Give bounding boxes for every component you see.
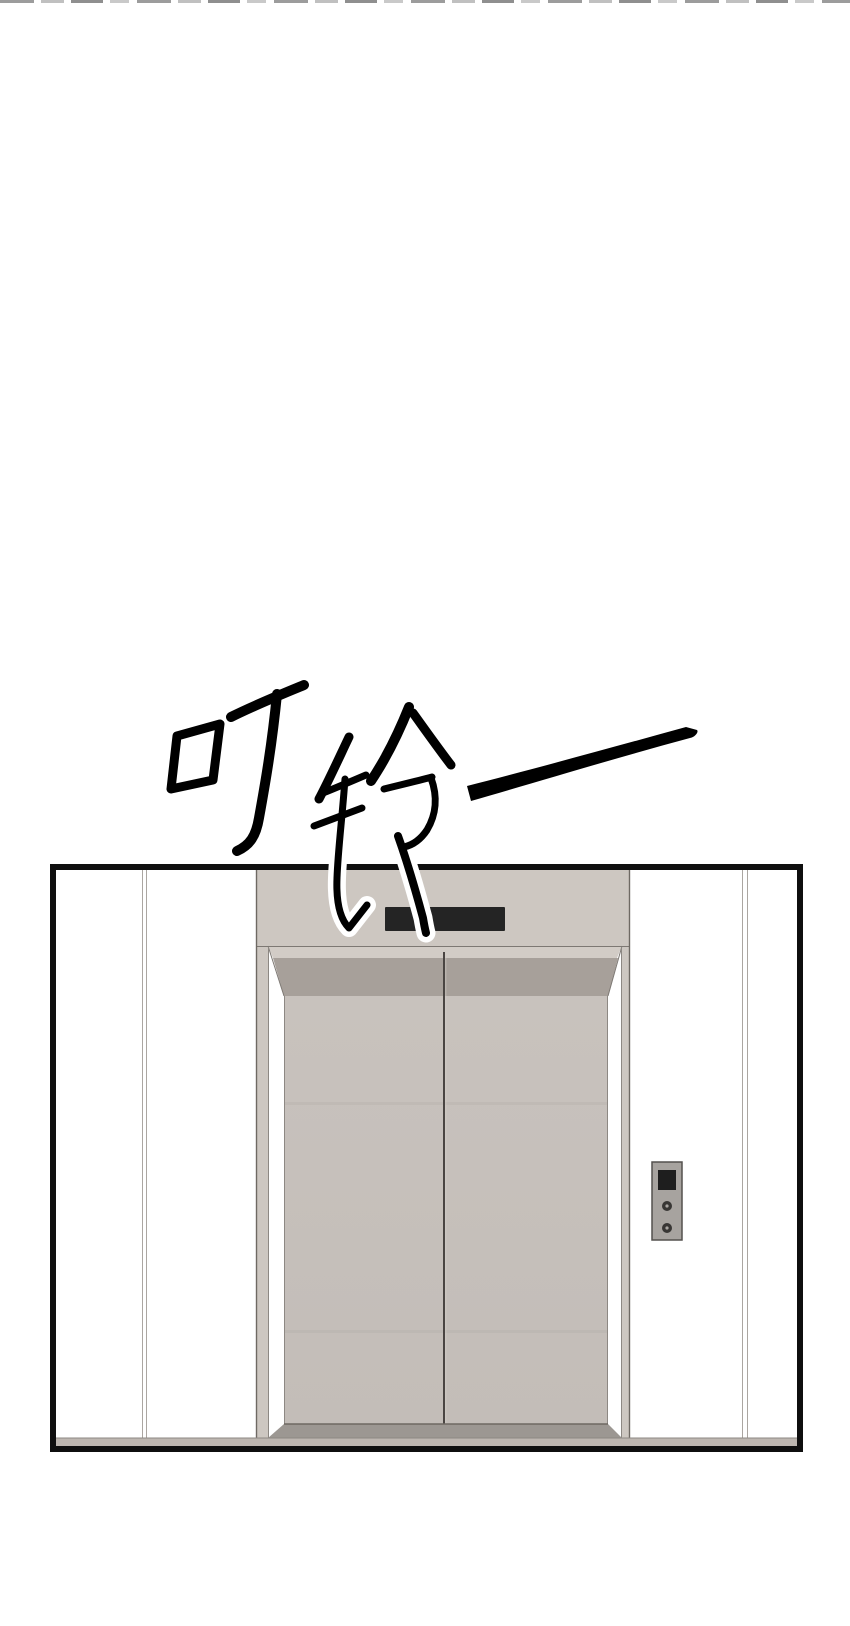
panel-art bbox=[0, 0, 850, 1626]
call-button-down-glyph bbox=[665, 1226, 668, 1229]
elevator-door-left bbox=[284, 996, 445, 1424]
call-button-panel bbox=[652, 1162, 682, 1240]
elevator-door-right bbox=[445, 996, 608, 1424]
floor-indicator-display bbox=[385, 907, 505, 931]
door-sill bbox=[268, 1424, 622, 1438]
call-panel-screen bbox=[658, 1170, 676, 1190]
comic-panel bbox=[53, 867, 800, 1449]
call-button-up-glyph bbox=[665, 1204, 668, 1207]
elevator-jamb-left bbox=[257, 947, 268, 1438]
comic-page: 叮铃— bbox=[0, 0, 850, 1626]
floor-strip bbox=[56, 1438, 797, 1446]
